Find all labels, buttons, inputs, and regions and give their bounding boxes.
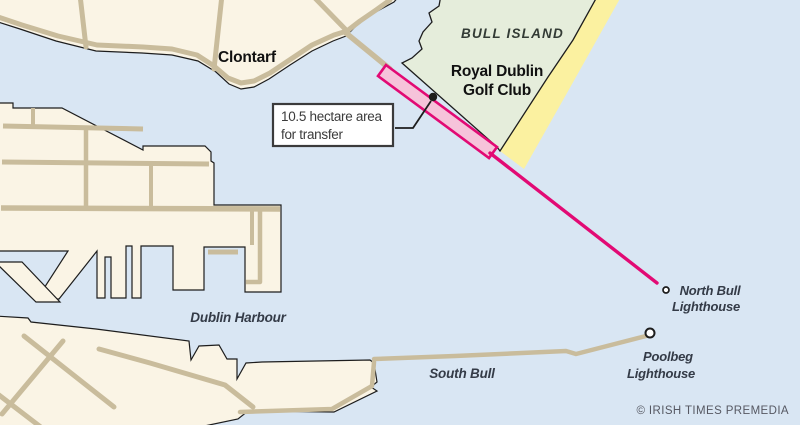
north-bull-lighthouse-marker	[663, 287, 669, 293]
label-golf-club-line2: Golf Club	[463, 82, 531, 99]
callout-anchor-dot	[429, 93, 437, 101]
label-north-bull-lighthouse-line2: Lighthouse	[672, 299, 740, 314]
label-dublin-harbour: Dublin Harbour	[190, 310, 286, 325]
label-bull-island: BULL ISLAND	[461, 26, 564, 41]
label-golf-club-line1: Royal Dublin	[451, 63, 543, 80]
label-poolbeg-lighthouse-line2: Lighthouse	[627, 366, 695, 381]
credit-line: © IRISH TIMES PREMEDIA	[636, 405, 789, 417]
callout-line1: 10.5 hectare area	[281, 109, 383, 124]
label-clontarf: Clontarf	[218, 49, 277, 66]
callout-line2: for transfer	[281, 127, 343, 142]
label-north-bull-lighthouse-line1: North Bull	[680, 283, 741, 298]
map-graphic: 10.5 hectare area for transfer Clontarf …	[0, 0, 800, 425]
label-poolbeg-lighthouse-line1: Poolbeg	[643, 349, 693, 364]
label-south-bull: South Bull	[429, 366, 495, 381]
poolbeg-lighthouse-marker	[646, 329, 655, 338]
